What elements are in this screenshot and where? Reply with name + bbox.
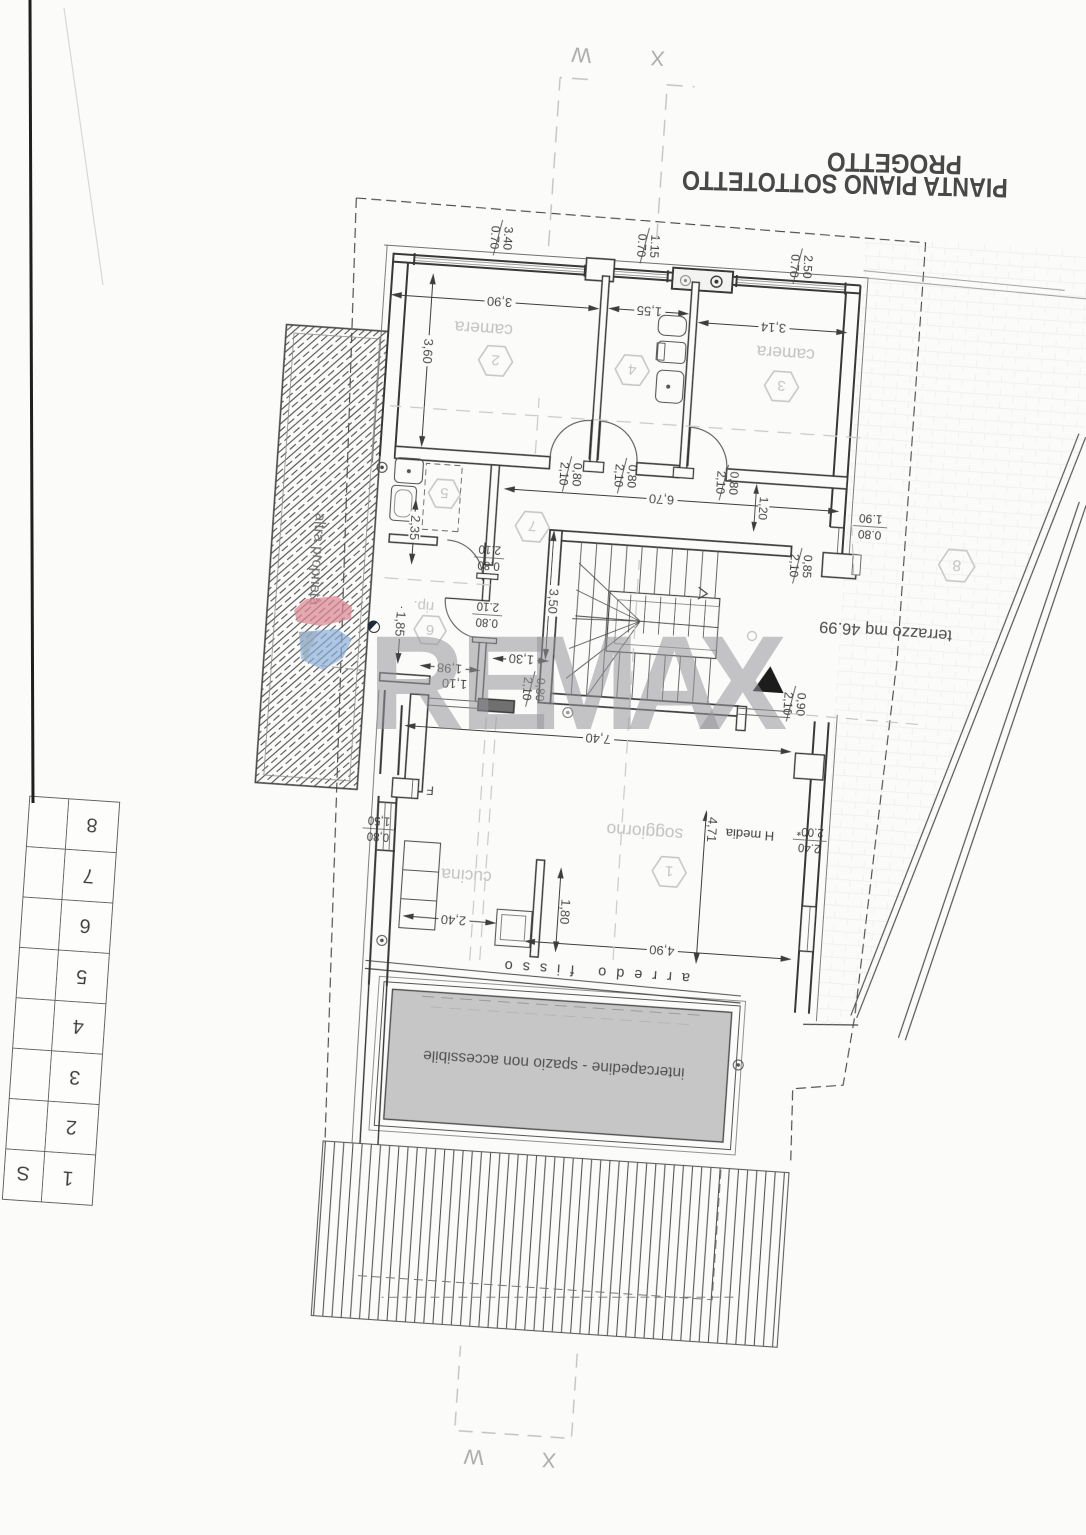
svg-text:2: 2 [65,1116,78,1139]
svg-text:2: 2 [491,351,500,369]
svg-text:3: 3 [777,377,786,395]
svg-text:6: 6 [79,914,92,937]
svg-text:X: X [541,1448,557,1472]
svg-text:4: 4 [628,361,637,379]
svg-text:M: M [528,609,640,758]
svg-text:2.10: 2.10 [478,542,501,555]
svg-text:R: R [368,609,465,758]
svg-text:5: 5 [440,484,449,502]
svg-text:4,90: 4,90 [649,942,675,959]
svg-text:1,20: 1,20 [755,496,771,521]
svg-text:1,80: 1,80 [557,899,574,925]
svg-text:3,60: 3,60 [420,338,437,364]
svg-text:2.00*: 2.00* [796,824,824,838]
svg-text:W: W [571,42,593,66]
svg-text:F: F [426,783,434,797]
svg-text:1: 1 [665,862,674,880]
svg-text:W: W [463,1444,485,1468]
svg-text:0.80: 0.80 [857,527,882,543]
svg-text:1: 1 [62,1166,75,1189]
svg-text:2.40: 2.40 [798,841,821,854]
svg-text:X: X [698,609,787,758]
svg-text:8: 8 [86,813,99,836]
svg-text:1,55: 1,55 [636,303,662,320]
svg-text:3,14: 3,14 [760,319,786,336]
svg-text:camera: camera [454,317,514,341]
svg-text:3: 3 [69,1065,82,1088]
svg-text:1.90: 1.90 [858,511,883,527]
svg-text:7: 7 [528,517,537,535]
svg-text:1,50: 1,50 [367,813,390,826]
svg-text:S: S [16,1161,31,1184]
svg-text:camera: camera [756,342,816,366]
svg-text:2,40: 2,40 [440,912,466,929]
svg-text:8: 8 [952,556,962,574]
svg-text:6,70: 6,70 [648,491,674,508]
svg-text:2,35: 2,35 [407,515,424,541]
svg-text:7: 7 [82,864,95,887]
svg-text:4: 4 [72,1015,85,1038]
svg-text:5: 5 [75,965,88,988]
svg-text:4,71: 4,71 [704,817,721,843]
svg-text:PROGETTO: PROGETTO [827,147,963,180]
svg-text:3,90: 3,90 [486,294,512,311]
svg-text:X: X [650,46,666,70]
svg-text:0,80: 0,80 [366,829,389,842]
svg-text:0.80: 0.80 [477,558,500,571]
